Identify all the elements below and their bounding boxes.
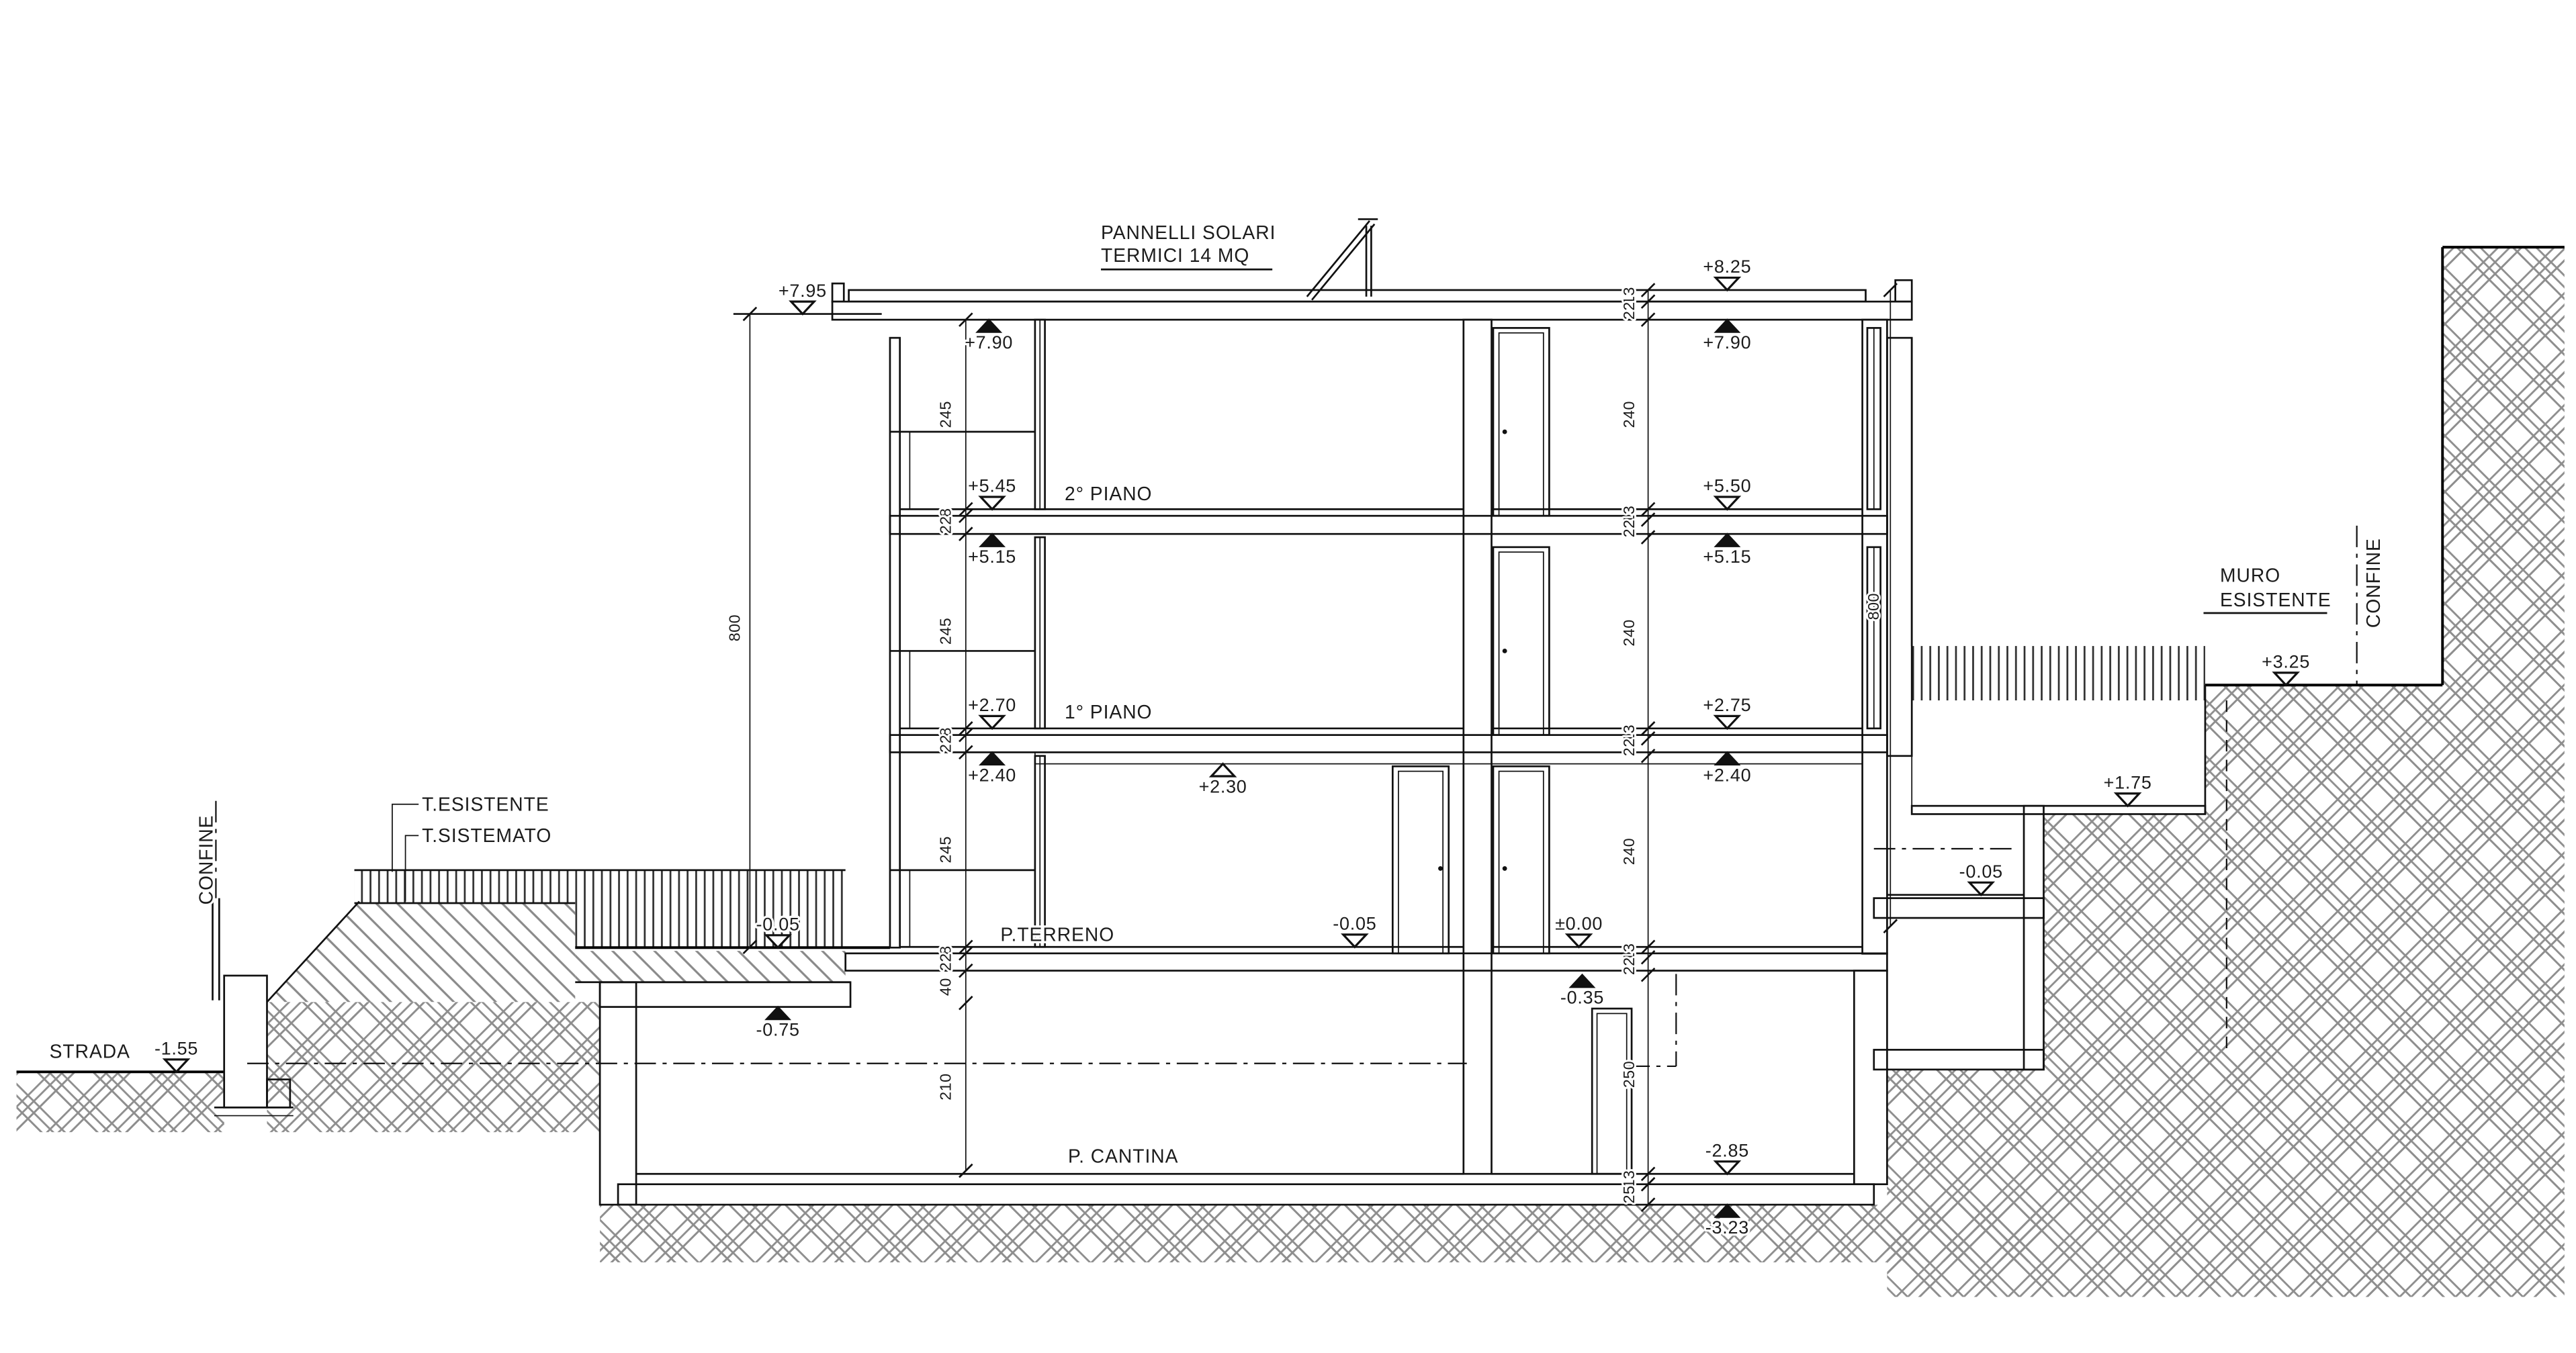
glazing-left-2 bbox=[1035, 320, 1045, 509]
floor1-slab bbox=[890, 735, 1887, 753]
right-wall bbox=[1863, 320, 1887, 953]
level-marker-filled: +7.90 bbox=[1703, 320, 1751, 353]
basement-right-wall bbox=[1854, 971, 1887, 1184]
window-right-2 bbox=[1867, 328, 1881, 509]
floor-label-terreno: P.TERRENO bbox=[1000, 923, 1114, 945]
dimension-label: 240 bbox=[1620, 401, 1638, 428]
level-value: +7.90 bbox=[965, 332, 1013, 353]
existing-wall-top bbox=[1912, 646, 2205, 700]
dimension-label: 25 bbox=[1620, 1185, 1638, 1203]
level-value: -0.05 bbox=[756, 914, 800, 934]
level-value: +1.75 bbox=[2104, 772, 2152, 792]
dimension-label: 22 bbox=[1620, 738, 1638, 756]
terrain-strip bbox=[355, 870, 576, 903]
existing-wall-label-1: MURO bbox=[2220, 564, 2280, 586]
loggia-areas bbox=[890, 432, 1035, 947]
solar-panel bbox=[1307, 219, 1378, 299]
level-marker-open: -2.85 bbox=[1705, 1140, 1749, 1174]
level-marker-open: -0.05 bbox=[1959, 861, 2003, 895]
door-floor1 bbox=[1493, 547, 1549, 735]
street-label: STRADA bbox=[50, 1041, 130, 1062]
level-marker-filled: +5.15 bbox=[968, 534, 1016, 567]
dimension-label: 22 bbox=[1620, 520, 1638, 538]
level-marker-open: ±0.00 bbox=[1555, 913, 1603, 947]
level-value: +2.40 bbox=[1703, 765, 1751, 785]
dimension-label: 245 bbox=[937, 836, 954, 863]
level-value: +2.75 bbox=[1703, 695, 1751, 715]
level-value: -0.05 bbox=[1333, 913, 1376, 933]
finish-lines bbox=[636, 338, 2024, 1174]
door-floor2 bbox=[1493, 328, 1549, 516]
rear-retaining-wall bbox=[2024, 806, 2043, 1070]
basement-left-wall bbox=[600, 982, 636, 1205]
solar-note-line2: TERMICI 14 MQ bbox=[1101, 244, 1249, 266]
dimension-label: 22 bbox=[937, 953, 954, 971]
loggia-fill-2 bbox=[909, 432, 1034, 509]
loggia-fill-1 bbox=[909, 651, 1034, 728]
level-marker-filled: +7.90 bbox=[965, 320, 1013, 353]
level-value: +5.15 bbox=[1703, 547, 1751, 567]
terrain-existing-label: T.ESISTENTE bbox=[422, 794, 549, 815]
level-value: -0.75 bbox=[756, 1020, 800, 1040]
floor2-slab bbox=[890, 516, 1887, 534]
door-cantina bbox=[1592, 1009, 1632, 1174]
dimension-label: 22 bbox=[937, 735, 954, 753]
roof-finish-layer bbox=[849, 290, 1866, 301]
middle-wall bbox=[1464, 320, 1492, 1174]
slope-fill bbox=[359, 902, 575, 1002]
slabs bbox=[600, 280, 2205, 1205]
roof-edge-right bbox=[1896, 280, 1912, 301]
level-value: +2.40 bbox=[968, 765, 1016, 785]
level-value: -0.05 bbox=[1959, 861, 2003, 882]
level-value: +3.25 bbox=[2262, 651, 2310, 671]
dimension-label: 22 bbox=[937, 516, 954, 534]
level-marker-open: +3.25 bbox=[2262, 651, 2310, 685]
level-marker-filled: +2.40 bbox=[1703, 752, 1751, 785]
foundation-slab bbox=[618, 1184, 1874, 1205]
level-value: -2.85 bbox=[1705, 1140, 1749, 1160]
left-facade-wall bbox=[890, 338, 900, 947]
dimension-label: 245 bbox=[937, 401, 954, 428]
solar-note-line1: PANNELLI SOLARI bbox=[1101, 222, 1276, 243]
door-ground-left bbox=[1392, 766, 1448, 953]
roof-slab bbox=[832, 301, 1912, 320]
existing-wall-label-2: ESISTENTE bbox=[2220, 589, 2331, 610]
level-marker-open: +5.50 bbox=[1703, 476, 1751, 510]
door-ground-right bbox=[1493, 766, 1549, 953]
floor-label-piano2: 2° PIANO bbox=[1065, 483, 1152, 504]
level-marker-open: +2.70 bbox=[968, 695, 1016, 729]
canopy-soffit-layer bbox=[1035, 752, 1863, 763]
rear-terrace-slab bbox=[1912, 806, 2205, 814]
level-marker-filled: -0.75 bbox=[756, 1007, 800, 1040]
level-marker-filled: +5.15 bbox=[1703, 534, 1751, 567]
rear-bay-upper-slab bbox=[1874, 898, 2044, 918]
level-marker-open: +2.75 bbox=[1703, 695, 1751, 729]
level-value: +2.30 bbox=[1199, 777, 1247, 797]
dimension-label: 240 bbox=[1620, 619, 1638, 646]
dimension-label: 22 bbox=[1620, 957, 1638, 975]
boundary-label-left: CONFINE bbox=[195, 815, 217, 905]
level-value: +5.50 bbox=[1703, 476, 1751, 496]
level-value: +5.45 bbox=[968, 476, 1016, 496]
dimension-label: 240 bbox=[1620, 838, 1638, 865]
level-value: -0.35 bbox=[1560, 988, 1604, 1008]
terrace-bed-fill bbox=[575, 951, 845, 982]
dimension-label: 245 bbox=[937, 618, 954, 645]
window-right-1 bbox=[1867, 547, 1881, 729]
level-value: +8.25 bbox=[1703, 256, 1751, 277]
dimension-label-outer-right: 800 bbox=[1865, 593, 1882, 620]
dimension-label: 40 bbox=[937, 978, 954, 996]
outer-dimensions: 800 800 bbox=[726, 283, 1897, 953]
glazing-left-1 bbox=[1035, 537, 1045, 729]
dimension-label: 250 bbox=[1620, 1061, 1638, 1088]
roof-edge-left bbox=[832, 283, 844, 301]
glazing-left-0 bbox=[1035, 756, 1045, 947]
level-marker-open: +2.30 bbox=[1199, 764, 1247, 797]
level-marker-open: -0.05 bbox=[1333, 913, 1376, 947]
level-value: +2.70 bbox=[968, 695, 1016, 715]
level-value: +7.90 bbox=[1703, 332, 1751, 353]
level-value: -1.55 bbox=[154, 1039, 198, 1059]
building-section-drawing: PANNELLI SOLARI TERMICI 14 MQ 2° PIANO 1… bbox=[0, 0, 2576, 1353]
floor-label-cantina: P. CANTINA bbox=[1068, 1146, 1179, 1167]
level-marker-open: +7.95 bbox=[779, 281, 827, 314]
level-marker-open: +8.25 bbox=[1703, 256, 1751, 290]
level-value: ±0.00 bbox=[1555, 913, 1603, 933]
building-walls bbox=[600, 320, 2043, 1205]
level-marker-open: -1.55 bbox=[154, 1039, 198, 1072]
openings bbox=[1035, 320, 1881, 1174]
boundary-label-right: CONFINE bbox=[2362, 538, 2384, 628]
dimension-label: 22 bbox=[1620, 301, 1638, 320]
terrain-arranged-label: T.SISTEMATO bbox=[422, 825, 551, 846]
level-marker-filled: -0.35 bbox=[1560, 975, 1604, 1008]
ground-floor-slab bbox=[846, 953, 1887, 971]
level-marker-filled: +2.40 bbox=[968, 752, 1016, 785]
ground-hatch bbox=[17, 247, 2565, 1297]
terrain-fill bbox=[575, 870, 845, 947]
dimension-label: 210 bbox=[937, 1073, 954, 1100]
level-value: +7.95 bbox=[779, 281, 827, 301]
rear-bay-lower-slab bbox=[1874, 1049, 2044, 1069]
floor-label-piano1: 1° PIANO bbox=[1065, 701, 1152, 722]
terrace-slab bbox=[600, 982, 850, 1007]
level-value: -3.23 bbox=[1705, 1217, 1749, 1238]
level-value: +5.15 bbox=[968, 547, 1016, 567]
level-marker-open: +1.75 bbox=[2104, 772, 2152, 806]
dimension-label-outer-left: 800 bbox=[726, 614, 744, 641]
level-marker-open: +5.45 bbox=[968, 476, 1016, 510]
